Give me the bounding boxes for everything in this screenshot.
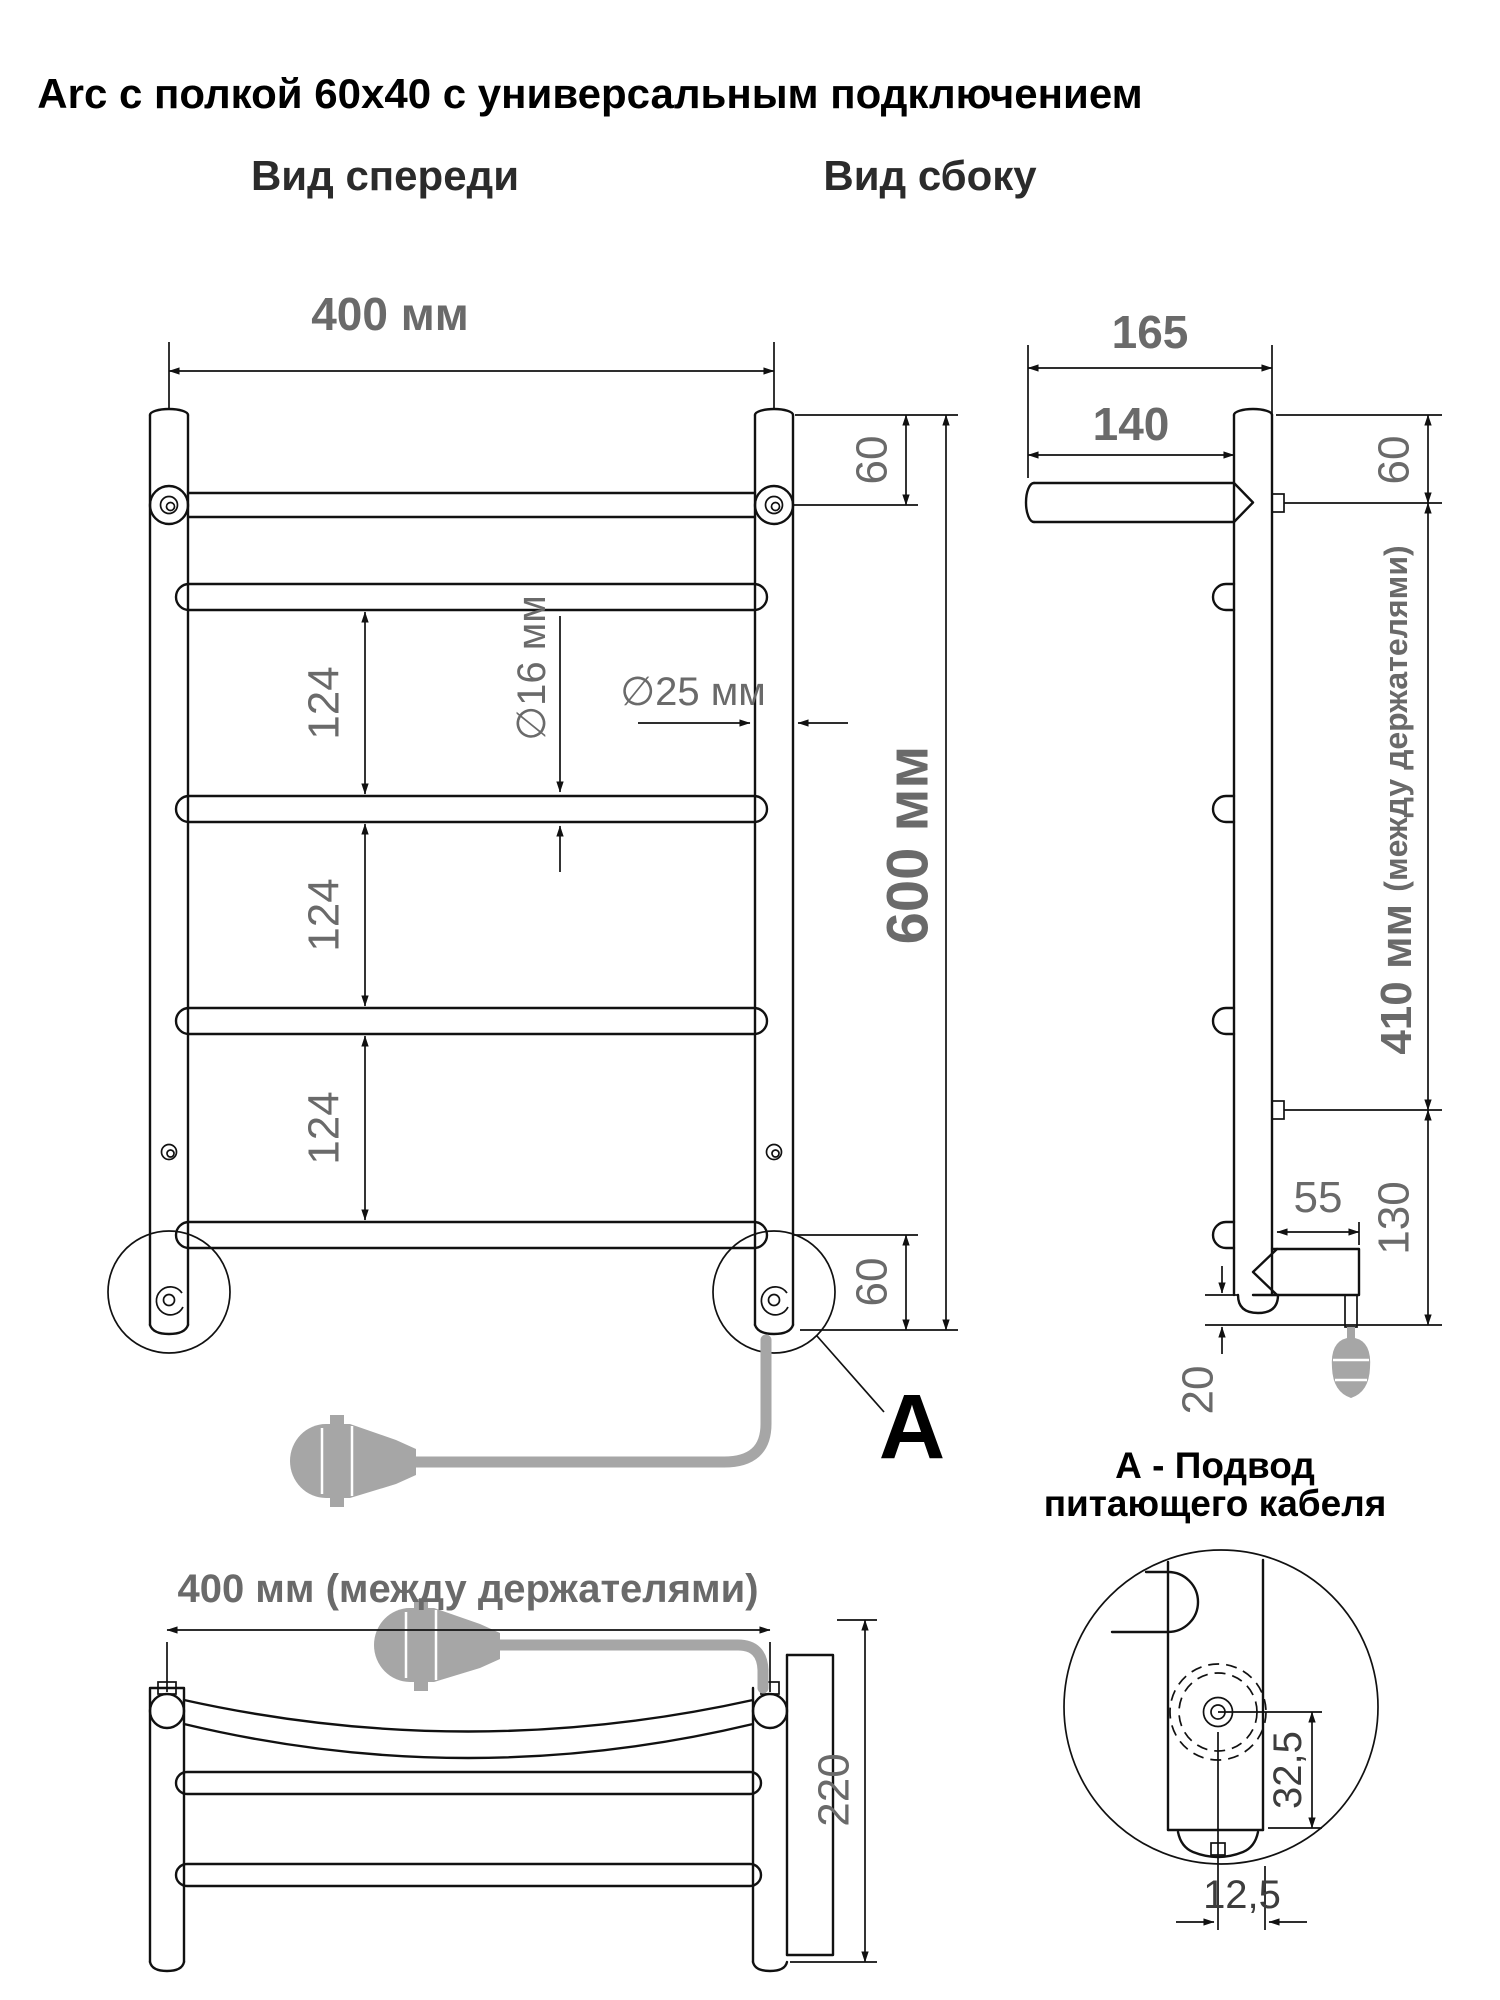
front-top-rail [150,486,793,524]
side-post [1234,409,1272,1295]
side-view-label: Вид сбоку [823,152,1037,199]
side-clip-bottom [1272,1101,1284,1119]
front-width-dimension: 400 мм [169,288,774,410]
front-power-cable [416,1340,766,1462]
spacing-dim-1: 124 [300,666,349,739]
front-left-post [150,409,188,1334]
callout-leader-line [817,1336,884,1412]
post-diameter-label: ∅25 мм [620,670,765,714]
front-top-offset-dimension: 60 [794,415,918,505]
front-right-post [755,409,793,1334]
top-rung-2 [176,1864,761,1886]
front-spacing-dimensions: 124 124 124 [300,612,366,1220]
front-wall-screws [162,1145,782,1160]
detail-rail-end [1112,1572,1198,1632]
detail-post [1168,1560,1263,1830]
front-height-dim-label: 600 мм [876,746,941,945]
front-rung-4 [176,1008,767,1034]
front-tube-diameter-dimension: ∅16 мм [510,595,560,872]
side-power-plug [1332,1295,1370,1398]
side-rung-stubs [1213,584,1234,1248]
top-width-label: 400 мм (между держателями) [177,1567,758,1611]
top-rung-1 [176,1772,761,1794]
front-view: A 400 мм 600 мм 60 [108,288,958,1507]
side-holders-note: (между держателями) [1378,545,1414,891]
side-arm-dimension: 55 [1277,1173,1359,1245]
side-holders-label: 410 мм (между держателями) [1372,545,1421,1054]
spacing-dim-3: 124 [300,1091,349,1164]
side-view: 165 140 60 410 мм (между держателями) 13… [1026,306,1442,1414]
front-power-plug [290,1415,416,1507]
detail-circle [1064,1550,1378,1864]
detail-center-label: 32,5 [1266,1731,1310,1809]
detail-center-dimension: 32,5 [1218,1712,1322,1828]
detail-view: А - Подвод питающего кабеля [1044,1445,1387,1930]
drawing-page: Arc с полкой 60x40 с универсальным подкл… [0,0,1500,2000]
top-shelf-curves [184,1700,753,1758]
front-view-label: Вид спереди [251,152,519,199]
side-depth-label: 165 [1112,306,1189,358]
detail-edge-label: 12,5 [1203,1873,1281,1917]
top-power-cable [500,1645,763,1688]
side-shelf-dimension: 140 [1028,398,1234,455]
front-width-dim-label: 400 мм [311,288,469,340]
side-cap-label: 20 [1174,1366,1223,1415]
front-post-diameter-dimension: ∅25 мм [620,670,848,723]
technical-drawing: Arc с полкой 60x40 с универсальным подкл… [0,0,1500,2000]
front-top-offset-label: 60 [848,436,897,485]
side-bottom-housing [1238,1249,1359,1313]
detail-caption-2: питающего кабеля [1044,1483,1387,1524]
front-rung-2 [176,584,767,610]
top-holders [150,1682,787,1728]
side-shelf-label: 140 [1093,398,1170,450]
top-view: 400 мм (между держателями) 220 [150,1567,877,1971]
top-left-arm [150,1688,184,1971]
side-cap-dimension: 20 [1174,1266,1239,1414]
side-top-offset-label: 60 [1370,436,1419,485]
callout-letter: A [879,1376,945,1478]
detail-caption-1: А - Подвод [1115,1445,1315,1486]
side-top-offset-dimension: 60 [1276,415,1442,503]
side-clip-top [1272,494,1284,512]
side-holders-dimension: 410 мм (между держателями) [1284,503,1442,1110]
front-height-dimension: 600 мм [795,415,958,1330]
side-arm-label: 55 [1294,1173,1343,1222]
front-rung-3 [176,796,767,822]
top-depth-label: 220 [810,1753,859,1826]
top-power-plug [374,1599,500,1691]
front-bottom-offset-label: 60 [848,1258,897,1307]
side-bottom-offset-label: 130 [1370,1181,1419,1254]
front-foot-screws [156,1287,788,1315]
front-bottom-offset-dimension: 60 [794,1235,918,1330]
side-shelf-arm [1026,483,1253,522]
spacing-dim-2: 124 [300,878,349,951]
side-holders-value: 410 мм [1372,892,1421,1055]
page-title: Arc с полкой 60x40 с универсальным подкл… [37,70,1142,117]
side-depth-dimension: 165 [1028,306,1272,478]
front-bottom-rail [176,1222,767,1248]
tube-diameter-label: ∅16 мм [510,595,554,740]
top-width-dimension: 400 мм (между держателями) [167,1567,770,1692]
